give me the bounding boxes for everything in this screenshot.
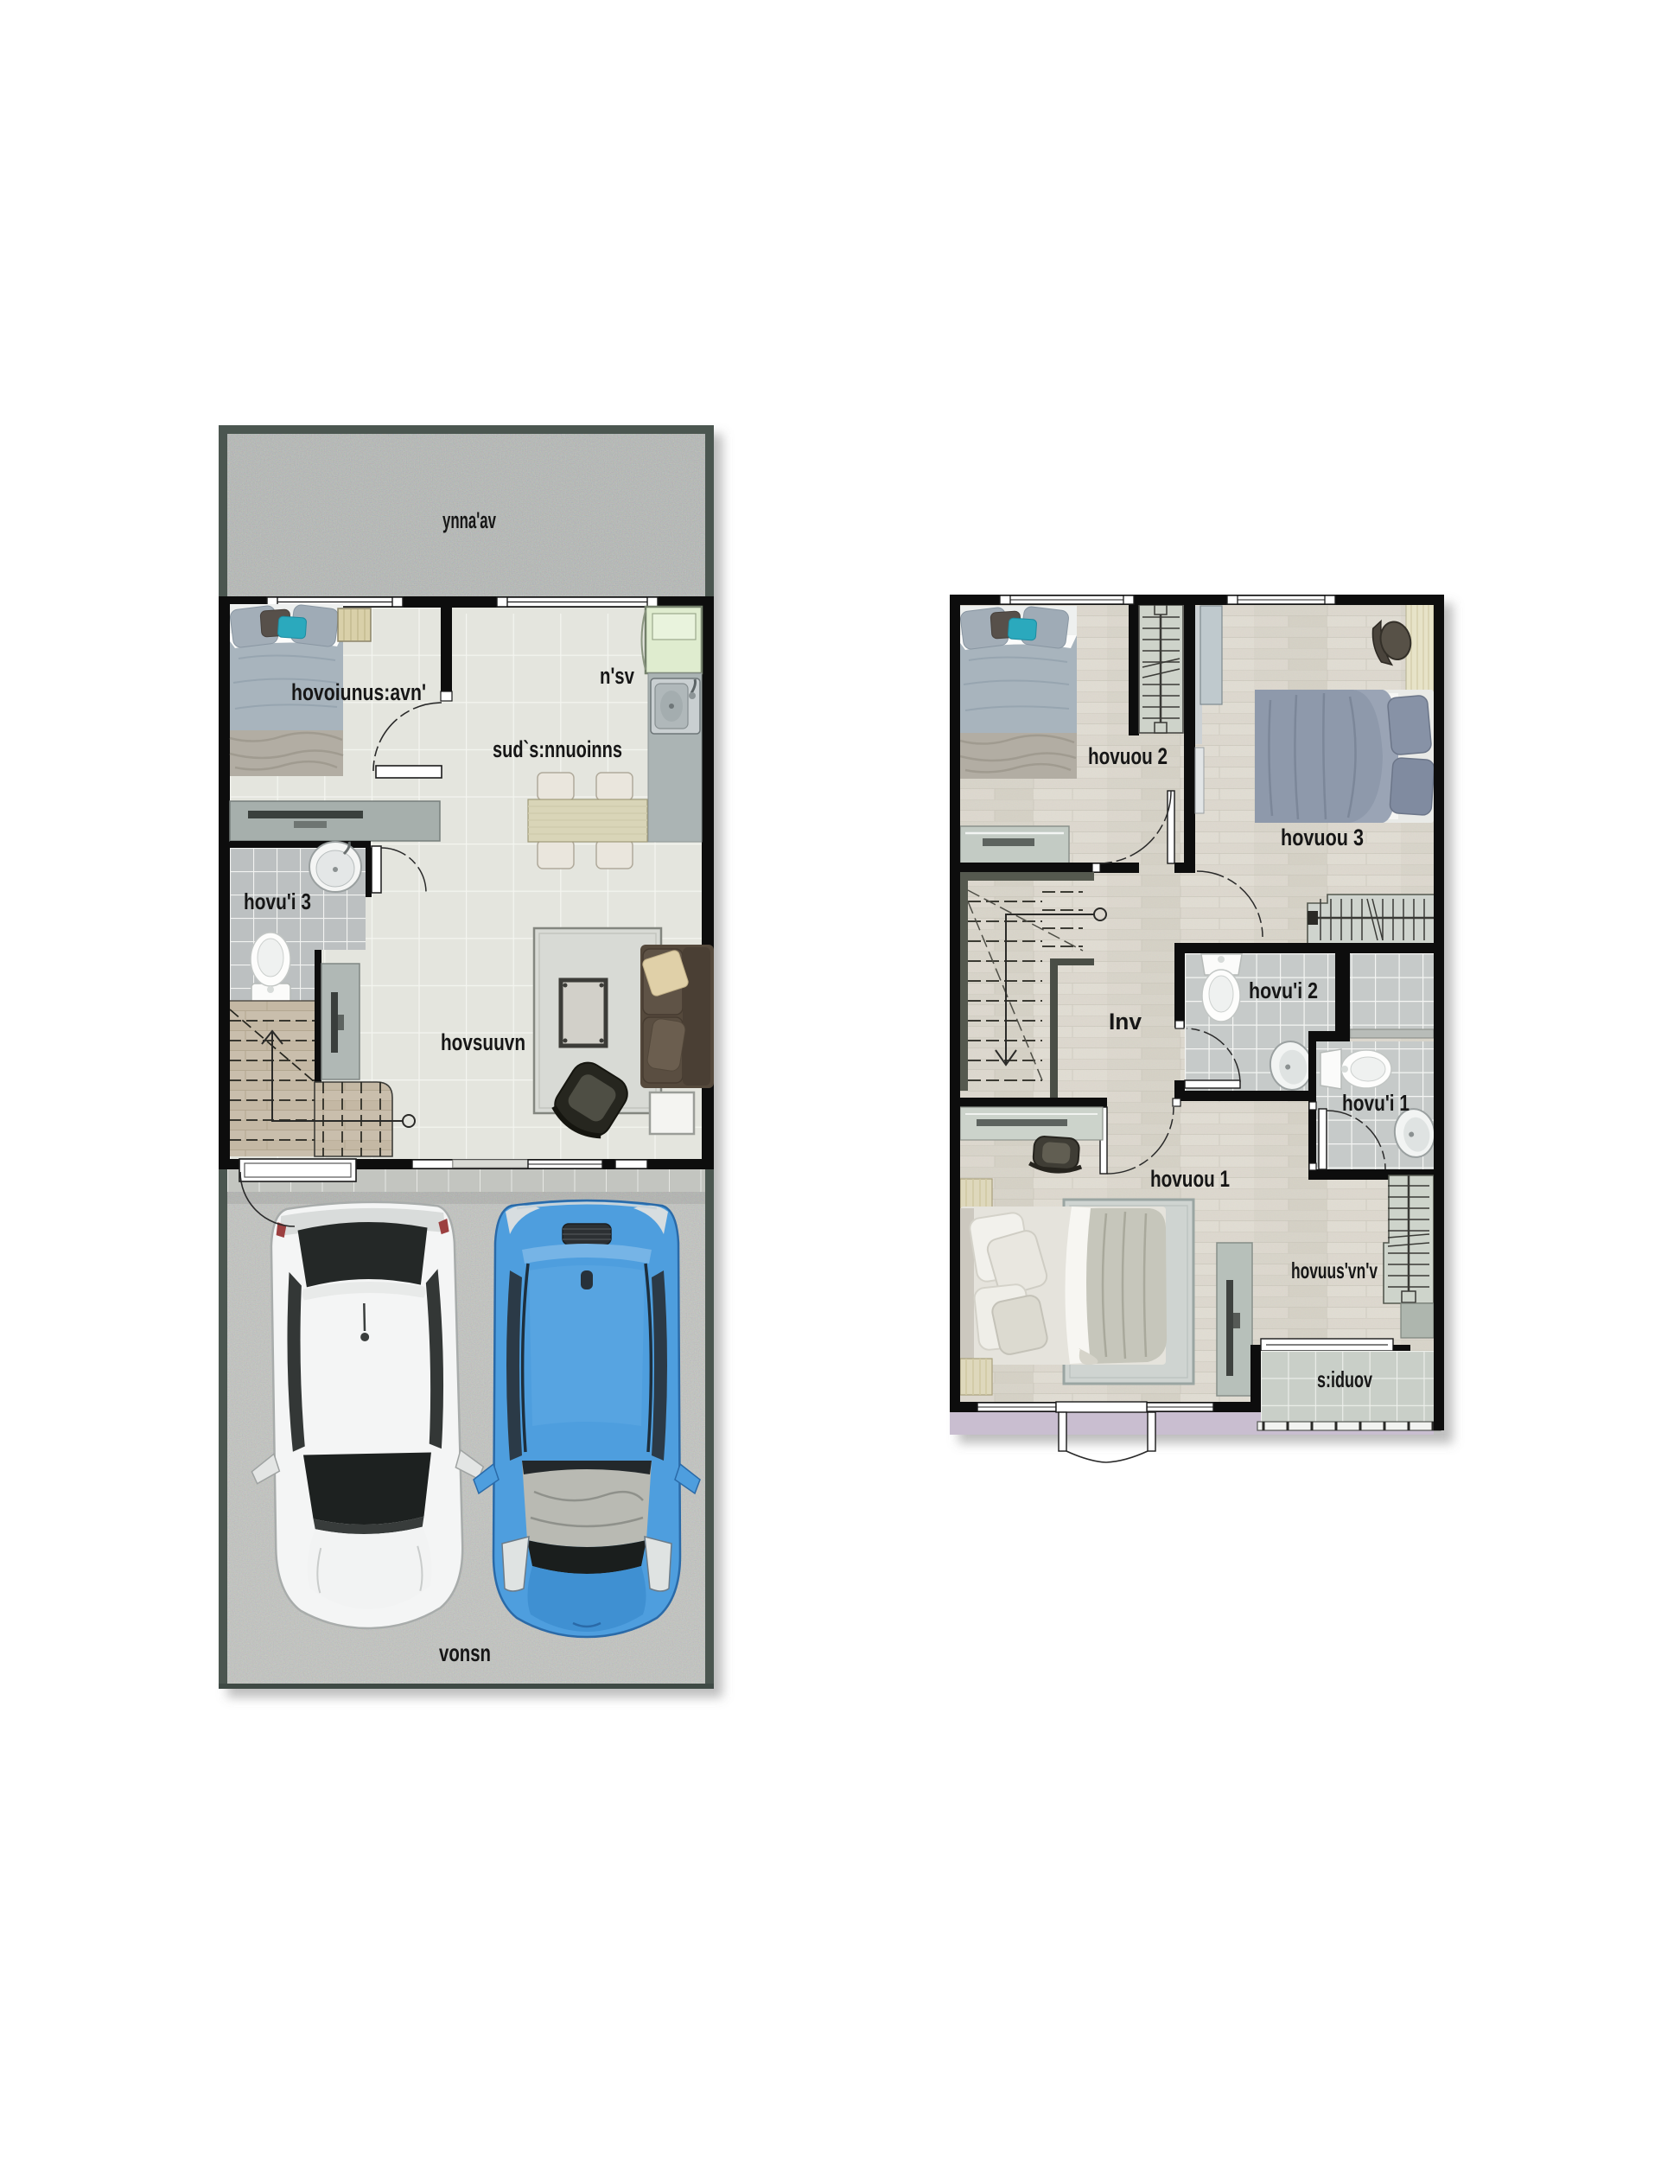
svg-text:sud`s:nnuoinns: sud`s:nnuoinns bbox=[493, 736, 622, 762]
svg-text:hovuus'vn'v: hovuus'vn'v bbox=[1291, 1258, 1378, 1283]
svg-text:hovu'i 2: hovu'i 2 bbox=[1249, 977, 1318, 1003]
svg-text:Inv: Inv bbox=[1109, 1009, 1142, 1035]
svg-text:hovuou 1: hovuou 1 bbox=[1150, 1166, 1230, 1192]
svg-text:ynna'av: ynna'av bbox=[442, 507, 496, 533]
svg-text:hovoiunus:avn': hovoiunus:avn' bbox=[291, 679, 426, 705]
svg-text:s:iduov: s:iduov bbox=[1317, 1366, 1372, 1392]
svg-text:hovu'i 1: hovu'i 1 bbox=[1342, 1090, 1410, 1116]
svg-text:vonsn: vonsn bbox=[439, 1640, 491, 1666]
svg-text:hovuou 3: hovuou 3 bbox=[1281, 825, 1364, 850]
svg-text:hovsuuvn: hovsuuvn bbox=[441, 1029, 525, 1055]
svg-text:n'sv: n'sv bbox=[600, 663, 634, 689]
svg-text:hovuou 2: hovuou 2 bbox=[1088, 743, 1168, 769]
svg-text:hovu'i 3: hovu'i 3 bbox=[244, 888, 311, 914]
